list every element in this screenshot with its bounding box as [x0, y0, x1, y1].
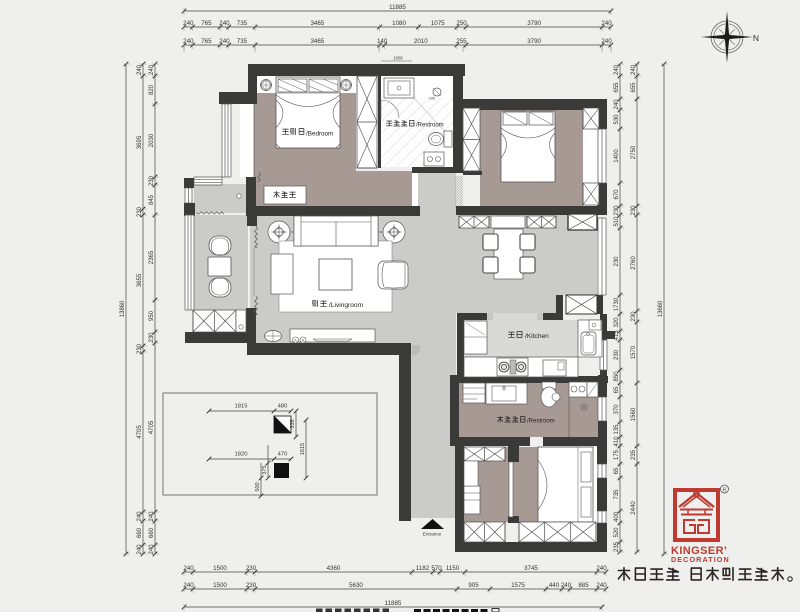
svg-text:65: 65 — [614, 467, 620, 474]
svg-text:670: 670 — [614, 189, 620, 200]
svg-text:1500: 1500 — [213, 582, 227, 589]
svg-text:2760: 2760 — [631, 256, 637, 270]
svg-text:240: 240 — [614, 64, 620, 75]
svg-text:480: 480 — [278, 404, 288, 410]
svg-text:230: 230 — [631, 205, 637, 216]
svg-text:230: 230 — [614, 256, 620, 267]
svg-text:320: 320 — [614, 317, 620, 328]
svg-text:415: 415 — [614, 330, 620, 341]
svg-text:240: 240 — [183, 582, 194, 589]
svg-text:1150: 1150 — [446, 565, 460, 572]
svg-text:2750: 2750 — [631, 145, 637, 159]
svg-text:13860: 13860 — [120, 300, 126, 317]
svg-text:4705: 4705 — [137, 425, 143, 439]
svg-text:570: 570 — [431, 565, 442, 572]
svg-text:240: 240 — [137, 511, 143, 522]
svg-text:370: 370 — [614, 404, 620, 415]
svg-text:950: 950 — [149, 310, 155, 321]
svg-text:240: 240 — [596, 582, 607, 589]
svg-text:140: 140 — [377, 38, 388, 45]
svg-text:230: 230 — [137, 206, 143, 217]
svg-text:240: 240 — [183, 565, 194, 572]
svg-text:11885: 11885 — [389, 4, 406, 11]
svg-text:11885: 11885 — [385, 600, 402, 607]
svg-text:230: 230 — [614, 205, 620, 216]
svg-text:240: 240 — [149, 511, 155, 522]
svg-text:240: 240 — [614, 99, 620, 110]
svg-text:240: 240 — [631, 64, 637, 75]
svg-text:510: 510 — [614, 216, 620, 227]
svg-text:3790: 3790 — [527, 38, 541, 45]
svg-text:4360: 4360 — [327, 565, 341, 572]
svg-text:Entrance: Entrance — [423, 532, 442, 537]
svg-text:A: A — [302, 338, 305, 343]
svg-text:240: 240 — [149, 64, 155, 75]
svg-text:1820: 1820 — [235, 452, 248, 458]
svg-text:/Kitchen: /Kitchen — [525, 333, 549, 340]
svg-text:100: 100 — [429, 97, 435, 101]
svg-text:735: 735 — [237, 20, 248, 27]
svg-text:/Restroom: /Restroom — [527, 419, 555, 425]
svg-text:1560: 1560 — [631, 407, 637, 421]
svg-text:3790: 3790 — [527, 20, 541, 27]
svg-text:240: 240 — [601, 38, 612, 45]
svg-text:230: 230 — [137, 343, 143, 354]
svg-text:3655: 3655 — [137, 273, 143, 287]
svg-text:905: 905 — [468, 582, 479, 589]
svg-text:1615: 1615 — [300, 443, 306, 455]
svg-text:655: 655 — [631, 82, 637, 93]
svg-text:500: 500 — [255, 482, 261, 491]
svg-text:/Livingroom: /Livingroom — [329, 302, 364, 309]
svg-text:240: 240 — [219, 38, 230, 45]
svg-text:765: 765 — [201, 38, 212, 45]
svg-text:470: 470 — [278, 452, 288, 458]
svg-text:520: 520 — [614, 527, 620, 538]
svg-text:240: 240 — [596, 565, 607, 572]
svg-text:5630: 5630 — [349, 582, 363, 589]
svg-text:13660: 13660 — [658, 300, 664, 317]
svg-text:240: 240 — [137, 64, 143, 75]
svg-text:765: 765 — [201, 20, 212, 27]
svg-text:175: 175 — [614, 449, 620, 460]
svg-text:1575: 1575 — [511, 582, 525, 589]
svg-text:440: 440 — [549, 582, 560, 589]
svg-text:1500: 1500 — [213, 565, 227, 572]
svg-text:250: 250 — [456, 20, 467, 27]
svg-text:230: 230 — [149, 175, 155, 186]
svg-text:2010: 2010 — [414, 38, 428, 45]
svg-text:DECORATION: DECORATION — [671, 555, 730, 564]
svg-text:230: 230 — [631, 311, 637, 322]
svg-text:530: 530 — [614, 114, 620, 125]
svg-text:845: 845 — [149, 194, 155, 205]
svg-text:65: 65 — [614, 386, 620, 393]
svg-text:1075: 1075 — [431, 20, 445, 27]
svg-text:4705: 4705 — [149, 420, 155, 434]
svg-text:240: 240 — [137, 544, 143, 555]
svg-text:335: 335 — [290, 419, 296, 428]
svg-text:1400: 1400 — [614, 149, 620, 163]
svg-text:820: 820 — [149, 84, 155, 95]
svg-text:230: 230 — [246, 582, 257, 589]
svg-text:1080: 1080 — [392, 20, 406, 27]
svg-text:235: 235 — [614, 541, 620, 552]
svg-text:R: R — [723, 488, 727, 494]
svg-text:/Restroom: /Restroom — [416, 123, 444, 129]
svg-text:2440: 2440 — [631, 501, 637, 515]
svg-text:885: 885 — [578, 582, 589, 589]
svg-text:1815: 1815 — [235, 404, 248, 410]
svg-text:230: 230 — [149, 332, 155, 343]
svg-text:255: 255 — [456, 38, 467, 45]
svg-text:375: 375 — [262, 465, 268, 474]
svg-text:2030: 2030 — [149, 133, 155, 147]
svg-text:850: 850 — [614, 371, 620, 382]
svg-text:660: 660 — [137, 527, 143, 538]
svg-text:240: 240 — [219, 20, 230, 27]
svg-text:3695: 3695 — [137, 135, 143, 149]
svg-text:235: 235 — [631, 449, 637, 460]
svg-text:655: 655 — [614, 82, 620, 93]
svg-text:1182: 1182 — [416, 565, 430, 572]
svg-text:240: 240 — [561, 582, 572, 589]
svg-text:240: 240 — [601, 20, 612, 27]
svg-text:735: 735 — [237, 38, 248, 45]
svg-text:3745: 3745 — [524, 565, 538, 572]
svg-text:240: 240 — [183, 20, 194, 27]
svg-text:230: 230 — [614, 349, 620, 360]
svg-text:240: 240 — [183, 38, 194, 45]
svg-text:A: A — [294, 338, 297, 343]
svg-text:240: 240 — [149, 544, 155, 555]
svg-text:1730: 1730 — [614, 297, 620, 311]
svg-text:N: N — [753, 33, 759, 43]
svg-text:1006: 1006 — [393, 56, 403, 61]
svg-text:400: 400 — [614, 511, 620, 522]
svg-text:410: 410 — [614, 436, 620, 447]
svg-text:3465: 3465 — [310, 38, 324, 45]
svg-text:135: 135 — [614, 424, 620, 435]
svg-text:/Bedroom: /Bedroom — [306, 131, 333, 138]
svg-text:735: 735 — [614, 489, 620, 500]
svg-text:660: 660 — [149, 527, 155, 538]
svg-text:3465: 3465 — [310, 20, 324, 27]
svg-text:230: 230 — [246, 565, 257, 572]
svg-text:1570: 1570 — [631, 345, 637, 359]
svg-text:2365: 2365 — [149, 250, 155, 264]
